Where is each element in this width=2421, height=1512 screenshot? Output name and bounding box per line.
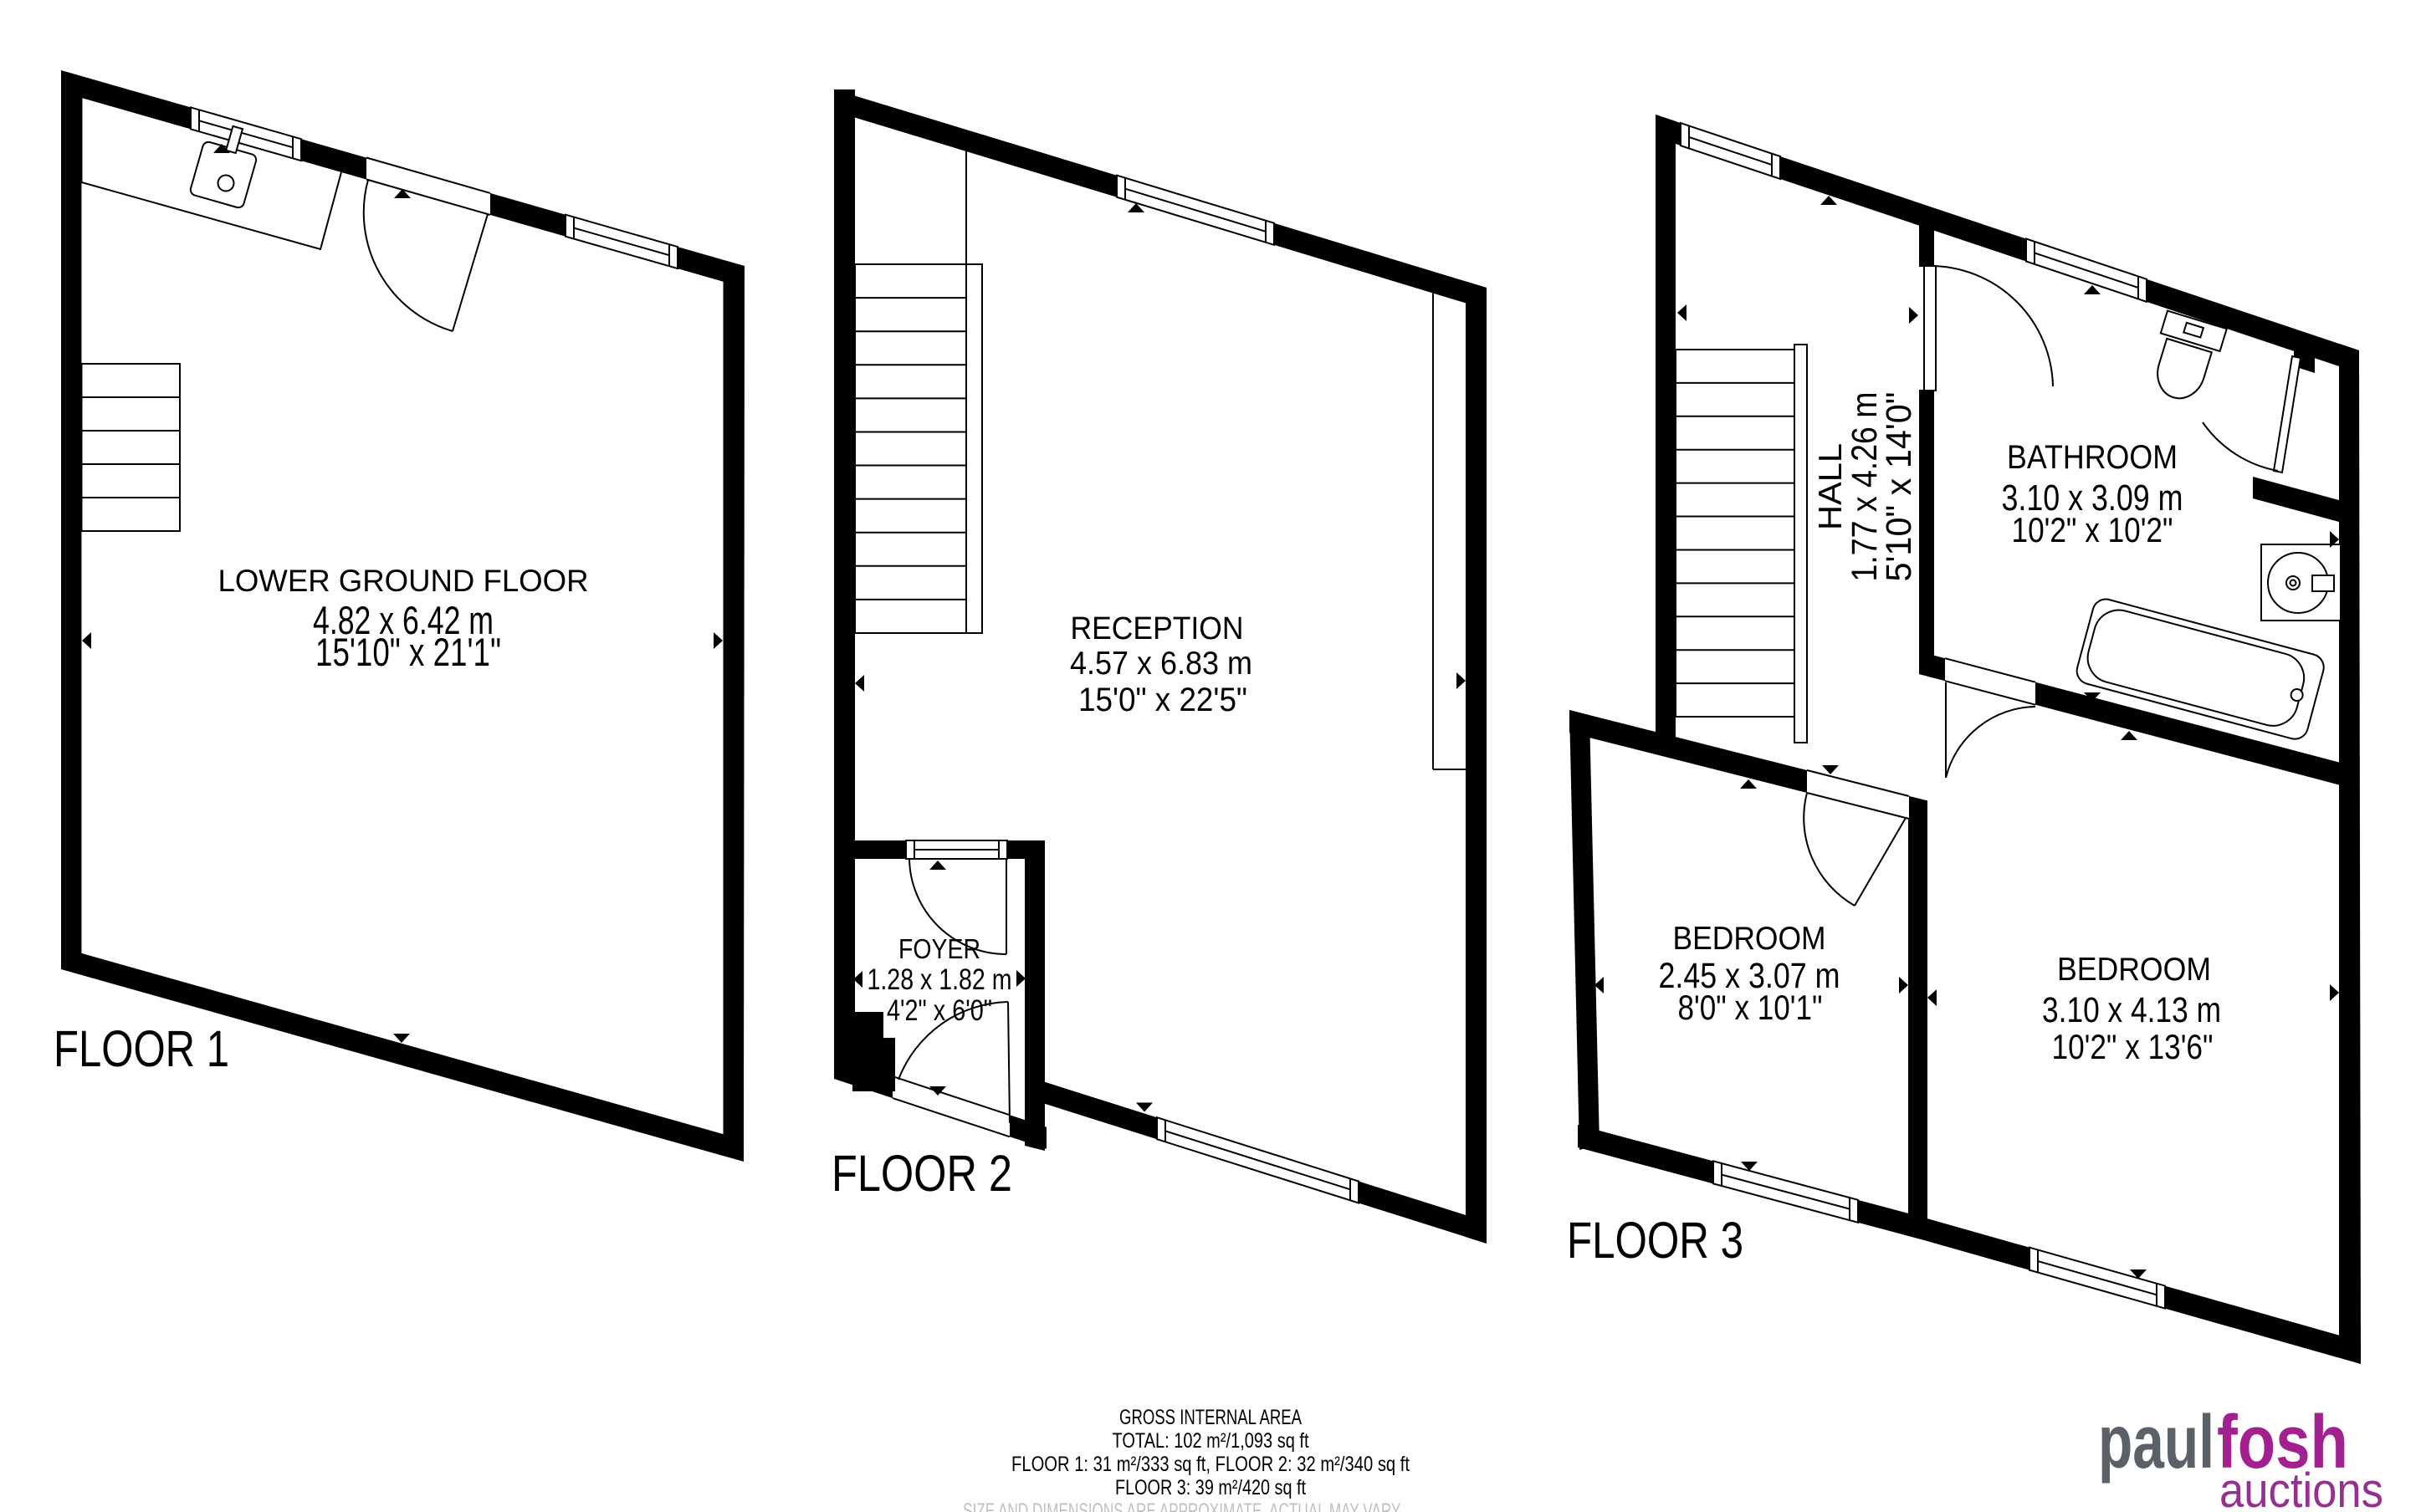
svg-text:FLOOR 3: FLOOR 3 <box>1567 1212 1743 1269</box>
svg-text:RECEPTION: RECEPTION <box>1071 611 1244 646</box>
svg-text:4'2" x 6'0": 4'2" x 6'0" <box>887 994 992 1027</box>
svg-text:FLOOR 3: 39 m²/420 sq ft: FLOOR 3: 39 m²/420 sq ft <box>1115 1476 1306 1499</box>
svg-text:5'10" x 14'0": 5'10" x 14'0" <box>1879 392 1919 582</box>
svg-text:4.57 x 6.83 m: 4.57 x 6.83 m <box>1070 646 1252 682</box>
svg-text:3.10 x 4.13 m: 3.10 x 4.13 m <box>2042 990 2221 1030</box>
svg-text:FOYER: FOYER <box>898 933 980 964</box>
svg-text:10'2" x 13'6": 10'2" x 13'6" <box>2052 1027 2214 1066</box>
svg-text:FLOOR 2: FLOOR 2 <box>832 1145 1012 1202</box>
svg-text:auctions: auctions <box>2219 1463 2383 1512</box>
svg-text:FLOOR 1: 31 m²/333 sq ft, FLOO: FLOOR 1: 31 m²/333 sq ft, FLOOR 2: 32 m²… <box>1011 1453 1410 1476</box>
svg-text:paul: paul <box>2098 1401 2214 1484</box>
svg-text:TOTAL: 102 m²/1,093 sq ft: TOTAL: 102 m²/1,093 sq ft <box>1113 1429 1309 1453</box>
svg-text:BEDROOM: BEDROOM <box>2057 952 2211 988</box>
svg-text:15'0" x 22'5": 15'0" x 22'5" <box>1078 682 1247 718</box>
svg-text:1.28 x 1.82 m: 1.28 x 1.82 m <box>868 963 1012 996</box>
svg-text:8'0" x 10'1": 8'0" x 10'1" <box>1678 988 1823 1027</box>
svg-text:LOWER GROUND FLOOR: LOWER GROUND FLOOR <box>218 564 589 598</box>
svg-text:FLOOR 1: FLOOR 1 <box>54 1020 229 1077</box>
svg-text:15'10" x 21'1": 15'10" x 21'1" <box>315 630 501 674</box>
svg-text:BATHROOM: BATHROOM <box>2007 439 2178 476</box>
svg-text:BEDROOM: BEDROOM <box>1673 921 1826 957</box>
svg-text:HALL: HALL <box>1813 443 1849 530</box>
svg-text:GROSS INTERNAL AREA: GROSS INTERNAL AREA <box>1119 1406 1302 1429</box>
svg-text:10'2" x 10'2": 10'2" x 10'2" <box>2012 510 2173 549</box>
svg-text:SIZE AND DIMENSIONS ARE APPROX: SIZE AND DIMENSIONS ARE APPROXIMATE, ACT… <box>963 1499 1403 1512</box>
